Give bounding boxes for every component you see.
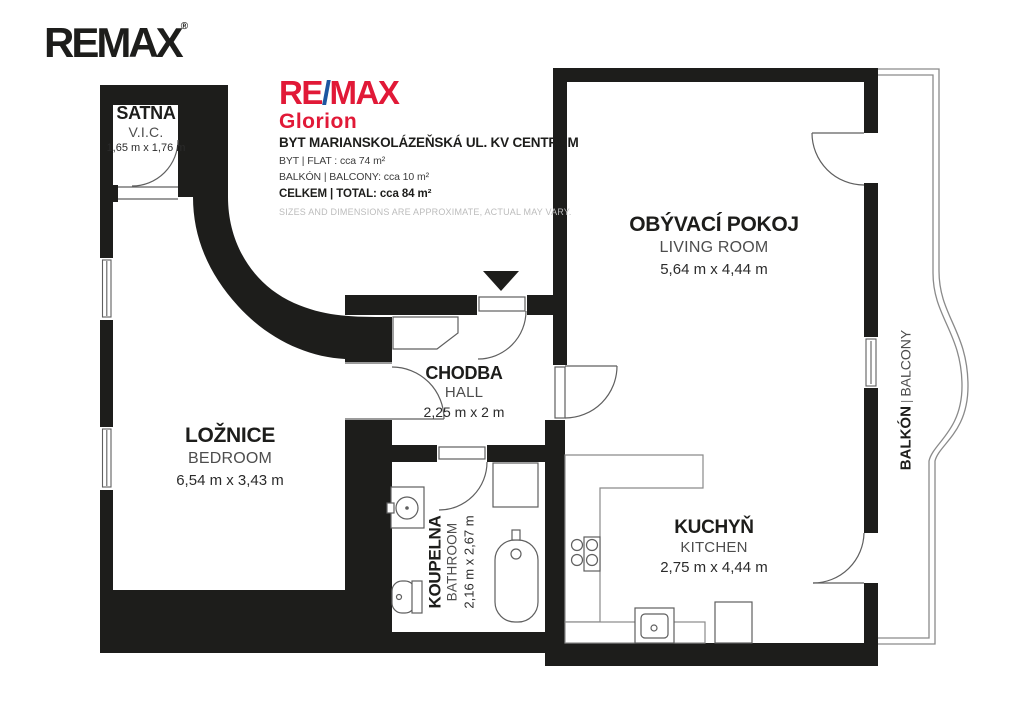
room-name: OBÝVACÍ POKOJ <box>629 213 799 237</box>
room-name-en: V.I.C. <box>107 124 186 140</box>
living-room-window-icon <box>866 339 876 386</box>
bedroom-window-icon <box>103 260 112 317</box>
living-room-balcony-door-icon <box>812 133 864 185</box>
room-name-en: HALL <box>424 384 505 402</box>
remax-logo-text: REMAX <box>44 19 181 66</box>
kitchen-sink-icon <box>635 608 674 643</box>
kitchen-balcony-door-icon <box>813 533 864 583</box>
label-separator: | <box>899 397 914 406</box>
disclaimer-text: SIZES AND DIMENSIONS ARE APPROXIMATE, AC… <box>279 208 579 217</box>
room-label-balkon: BALKÓN|BALCONY <box>898 330 915 470</box>
listing-header: BYT MARIANSKOLÁZEŇSKÁ UL. KV CENTRUM BYT… <box>279 136 579 217</box>
sink-icon <box>387 487 424 528</box>
room-name: CHODBA <box>424 363 505 384</box>
room-name: ŠATNA <box>107 103 186 124</box>
living-room-door-icon <box>555 366 617 418</box>
room-name: KOUPELNA <box>426 515 445 608</box>
room-dims: 2,16 m x 2,67 m <box>461 515 479 608</box>
area-total-line: CELKEM | TOTAL: cca 84 m² <box>279 189 579 201</box>
balcony-outline <box>872 69 968 644</box>
room-dims: 1,65 m x 1,76 m <box>107 140 186 157</box>
room-dims: 5,64 m x 4,44 m <box>629 258 799 281</box>
office-logo-slash: / <box>322 74 330 111</box>
floor-plan-page: REMAX® RE/MAX Glorion BYT MARIANSKOLÁZEŇ… <box>0 0 1024 723</box>
room-dims: 2,25 m x 2 m <box>424 402 505 422</box>
area-balcony-line: BALKÓN | BALCONY: cca 10 m² <box>279 172 579 183</box>
room-label-loznice: LOŽNICE BEDROOM 6,54 m x 3,43 m <box>176 424 284 492</box>
office-name: Glorion <box>279 111 398 132</box>
room-name-en: LIVING ROOM <box>629 237 799 258</box>
hall-closet-icon <box>393 317 458 349</box>
room-name: BALKÓN <box>898 406 915 470</box>
bathroom-door-icon <box>439 447 487 510</box>
room-label-chodba: CHODBA HALL 2,25 m x 2 m <box>424 363 505 422</box>
entrance-door-icon <box>478 297 526 359</box>
area-flat-line: BYT | FLAT : cca 74 m² <box>279 156 579 167</box>
toilet-icon <box>392 581 422 613</box>
office-logo-max: MAX <box>330 74 399 111</box>
room-name: LOŽNICE <box>176 424 284 448</box>
bathtub-icon <box>495 530 538 622</box>
office-logo-re: RE <box>279 74 322 111</box>
dishwasher-icon <box>715 602 752 643</box>
room-name-en: BALCONY <box>898 330 914 397</box>
room-name-en: BATHROOM <box>445 515 461 608</box>
office-logo-wordmark: RE/MAX <box>279 76 398 109</box>
washing-machine-icon <box>493 463 538 507</box>
remax-trademark: ® <box>181 21 188 32</box>
listing-title: BYT MARIANSKOLÁZEŇSKÁ UL. KV CENTRUM <box>279 136 579 150</box>
room-dims: 2,75 m x 4,44 m <box>660 557 768 579</box>
office-logo: RE/MAX Glorion <box>279 76 398 132</box>
room-dims: 6,54 m x 3,43 m <box>176 469 284 492</box>
room-name-en: BEDROOM <box>176 448 284 469</box>
room-label-koupelna: KOUPELNA BATHROOM 2,16 m x 2,67 m <box>426 515 479 608</box>
bedroom-window-2-icon <box>103 429 112 487</box>
remax-logo: REMAX® <box>44 22 188 64</box>
room-label-kuchyn: KUCHYŇ KITCHEN 2,75 m x 4,44 m <box>660 517 768 579</box>
room-label-satna: ŠATNA V.I.C. 1,65 m x 1,76 m <box>107 103 186 157</box>
entrance-arrow-icon <box>483 271 519 291</box>
room-name: KUCHYŇ <box>660 517 768 539</box>
room-label-obyvaci-pokoj: OBÝVACÍ POKOJ LIVING ROOM 5,64 m x 4,44 … <box>629 213 799 281</box>
room-name-en: KITCHEN <box>660 539 768 557</box>
